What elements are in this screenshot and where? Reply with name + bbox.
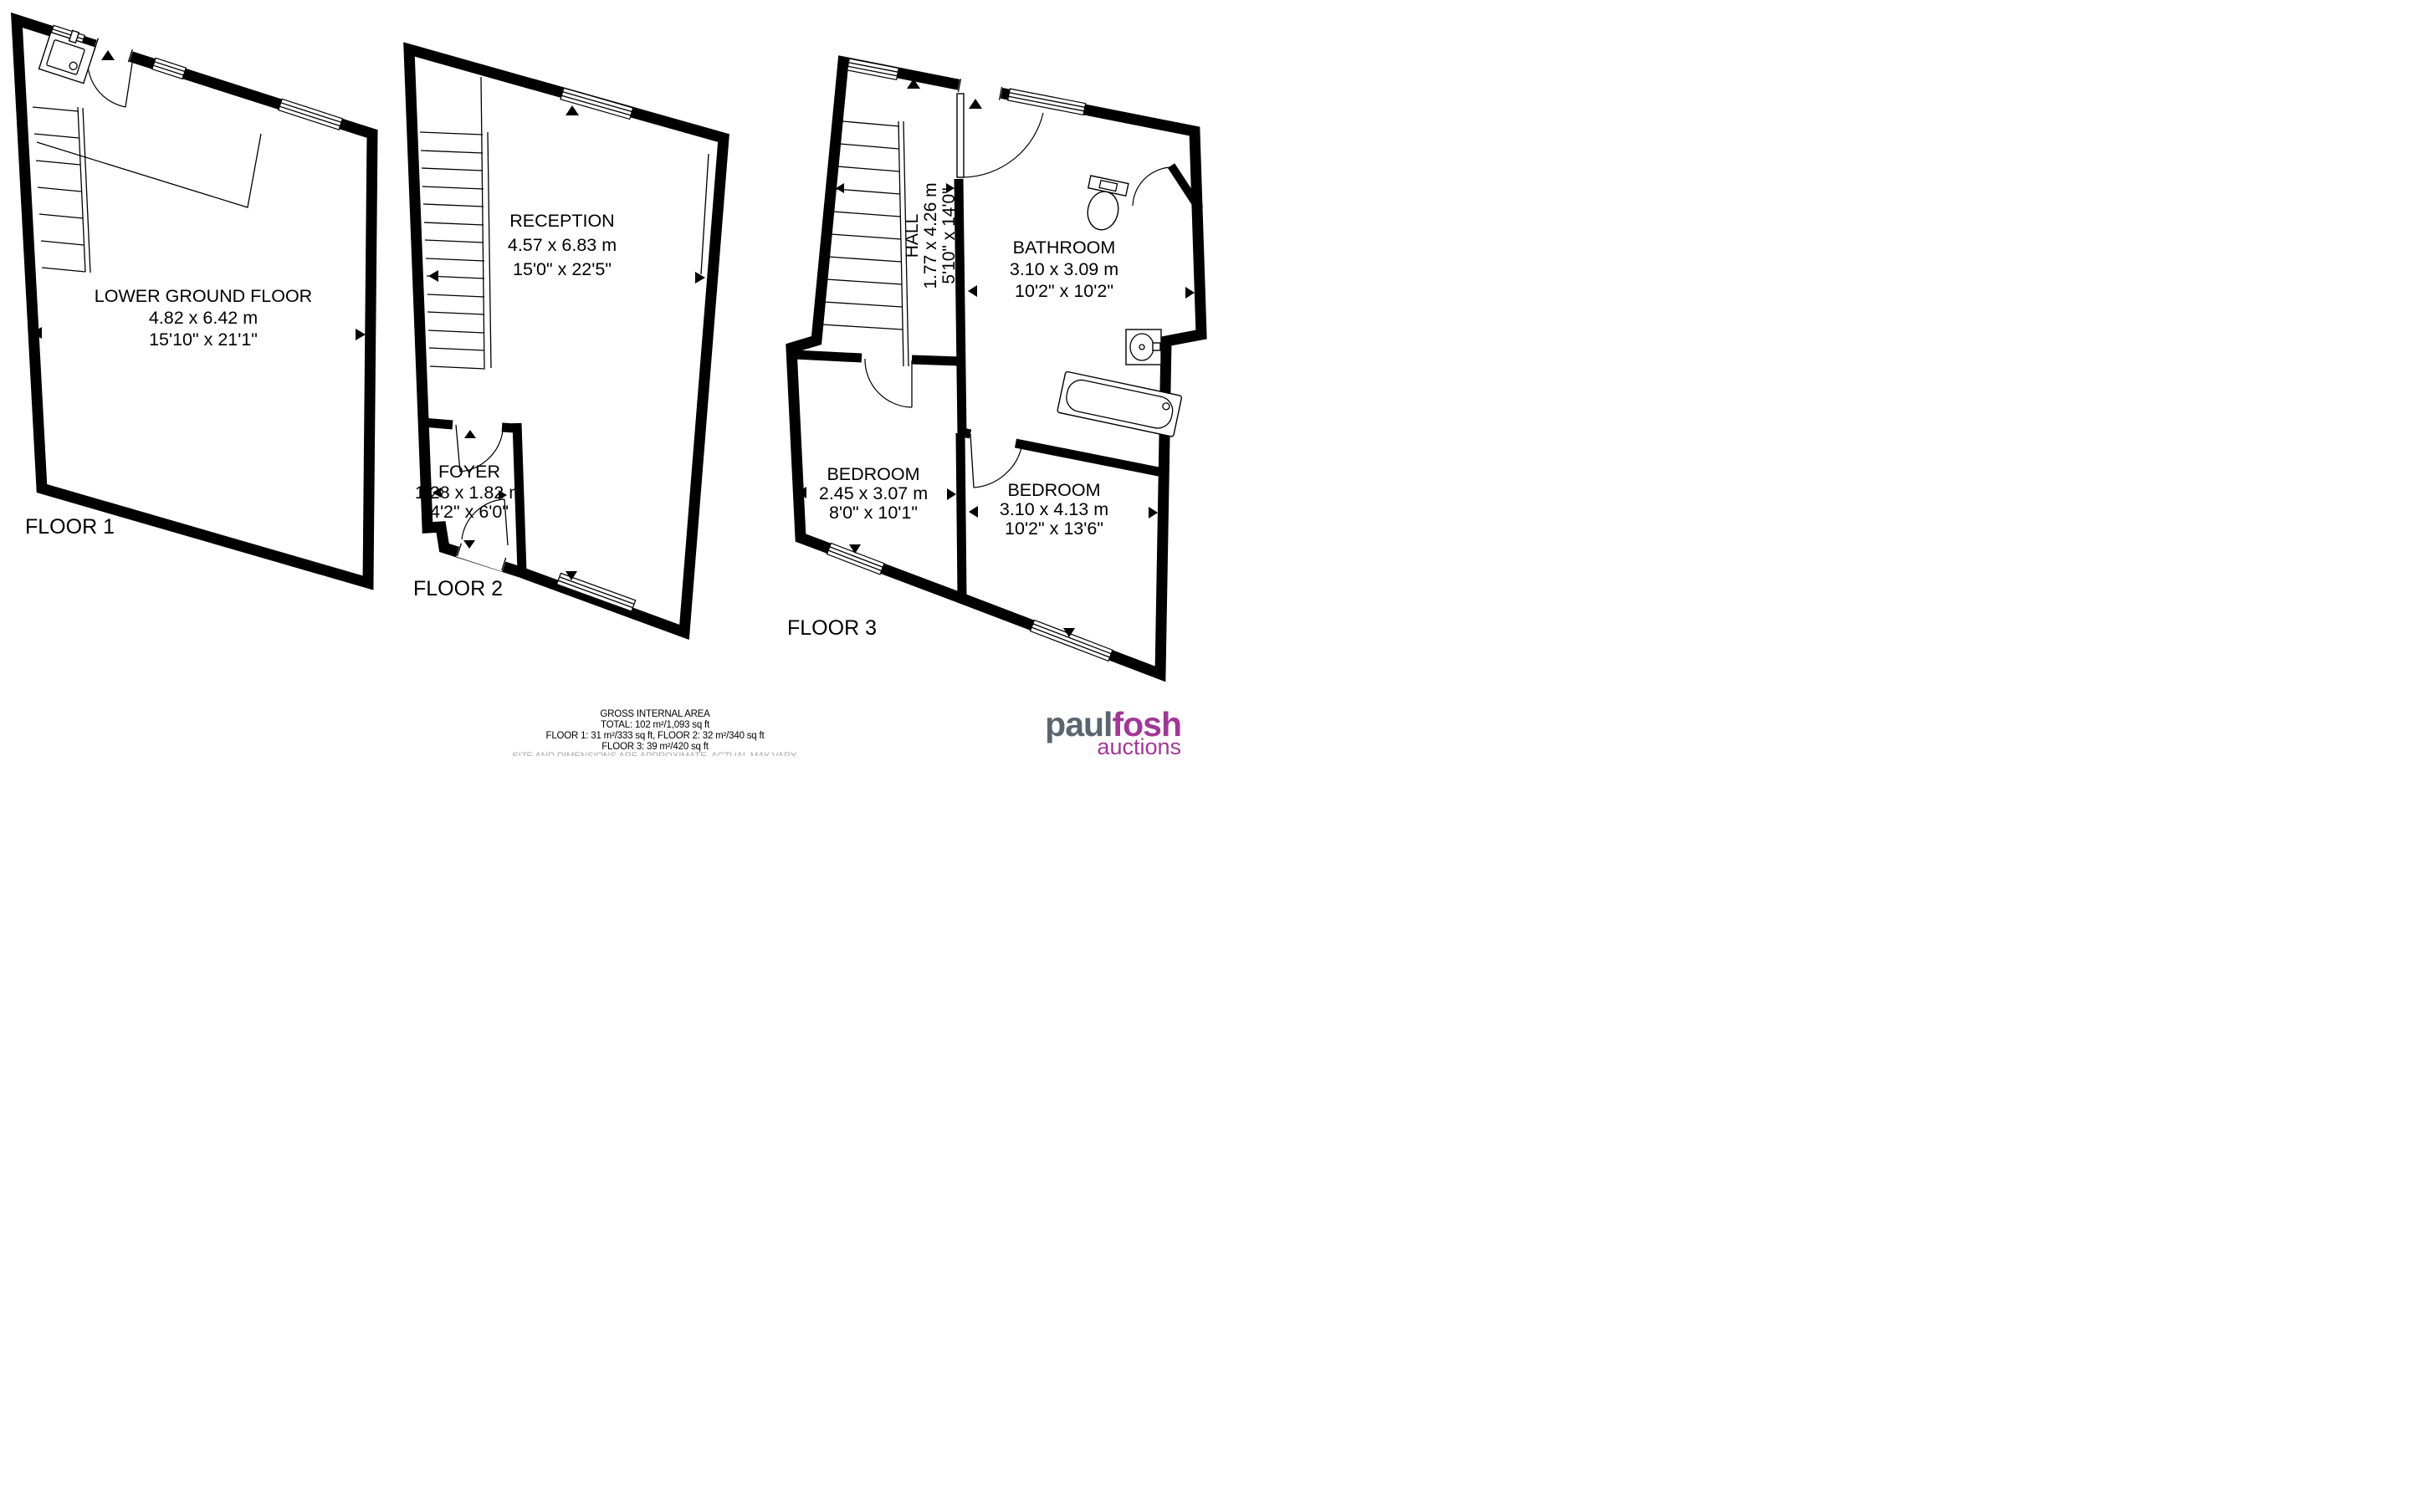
room-imperial: 10'2" x 13'6" [1005,518,1103,539]
room-label: RECEPTION [509,211,614,231]
room-imperial: 5'10" x 14'0" [939,187,959,283]
window [152,58,186,79]
dim-arrow-left-icon [836,183,844,193]
dim-arrow-right-icon [1149,507,1158,518]
dim-arrow-right-icon [695,272,705,283]
floor-2-label: FLOOR 2 [413,577,503,600]
window [847,59,899,79]
room-label: BEDROOM [1007,480,1100,500]
room-metric: 4.57 x 6.83 m [508,235,617,255]
dim-arrow-right-icon [1185,287,1195,299]
room-label: BEDROOM [827,464,919,484]
floor-3-label: FLOOR 3 [787,616,877,640]
hall-wall [959,179,962,435]
dim-arrow-left-icon [428,270,438,282]
floor-1-label: FLOOR 1 [25,515,115,539]
kitchen-counter [37,134,261,207]
door-opening [456,542,507,571]
room-metric: 2.45 x 3.07 m [819,483,928,503]
logo-word-auctions: auctions [1097,734,1181,756]
room-imperial: 8'0" x 10'1" [829,503,918,523]
divider-wall [960,433,962,596]
dim-arrow-left-icon [968,285,977,297]
door-leaf [970,434,974,488]
door-leaf [125,58,133,107]
foyer-wall [422,422,453,425]
wall-recess-line [701,154,709,274]
floorplan-page: LOWER GROUND FLOOR 4.82 x 6.42 m 15'10" … [0,0,1210,756]
bathroom-wall [1016,443,1163,472]
room-metric: 4.82 x 6.42 m [149,308,258,328]
door-leaf [957,94,964,177]
room-metric: 3.10 x 3.09 m [1010,259,1118,279]
room-imperial: 4'2" x 6'0" [430,502,509,522]
door-arc [865,359,912,407]
room-metric: 1.28 x 1.82 m [415,483,524,503]
room-label: FOYER [438,462,500,482]
room-label: HALL [903,214,922,258]
footer-total: TOTAL: 102 m²/1,093 sq ft [601,720,710,730]
entry-arrow-icon [566,105,579,115]
floor-3-wall-outline [791,62,1201,674]
stairs [33,107,90,273]
floor-3-plan: HALL 1.77 x 4.26 m 5'10" x 14'0" BATHROO… [787,59,1201,674]
entry-arrow-icon [969,99,982,109]
floor-1-plan: LOWER GROUND FLOOR 4.82 x 6.42 m 15'10" … [17,20,372,583]
shower-door-arc [1133,167,1173,206]
toilet-icon [1080,176,1129,233]
window [1030,620,1112,661]
bedroom-wall [912,360,960,361]
floor-2-wall-outline [409,49,724,632]
window [1008,89,1086,115]
dim-arrow-right-icon [356,329,366,340]
entry-arrow-icon [464,430,476,438]
dim-arrow-right-icon [947,488,956,500]
bedroom-wall [795,355,862,358]
footer-floors-1-2: FLOOR 1: 31 m²/333 sq ft, FLOOR 2: 32 m²… [546,731,765,741]
footer-title: GROSS INTERNAL AREA [600,709,710,719]
floor-2-plan: RECEPTION 4.57 x 6.83 m 15'0" x 22'5" FO… [409,49,724,632]
floorplan-canvas: LOWER GROUND FLOOR 4.82 x 6.42 m 15'10" … [0,0,1210,756]
stairs [420,77,491,369]
paulfosh-auctions-logo: paulfosh auctions [1045,705,1181,756]
room-label: BATHROOM [1013,238,1116,258]
basin-icon [1126,329,1161,365]
room-metric: 1.77 x 4.26 m [921,182,940,289]
door-arc [964,113,1043,177]
room-imperial: 15'10" x 21'1" [149,329,258,350]
room-imperial: 10'2" x 10'2" [1015,281,1113,301]
footer-area: GROSS INTERNAL AREA TOTAL: 102 m²/1,093 … [512,709,798,756]
footer-floor-3: FLOOR 3: 39 m²/420 sq ft [601,742,709,752]
room-imperial: 15'0" x 22'5" [513,259,612,279]
room-metric: 3.10 x 4.13 m [1000,499,1108,519]
dim-arrow-left-icon [969,506,978,518]
footer-disclaimer: SIZE AND DIMENSIONS ARE APPROXIMATE, ACT… [512,752,798,756]
window [279,99,343,130]
room-label: LOWER GROUND FLOOR [95,286,312,306]
